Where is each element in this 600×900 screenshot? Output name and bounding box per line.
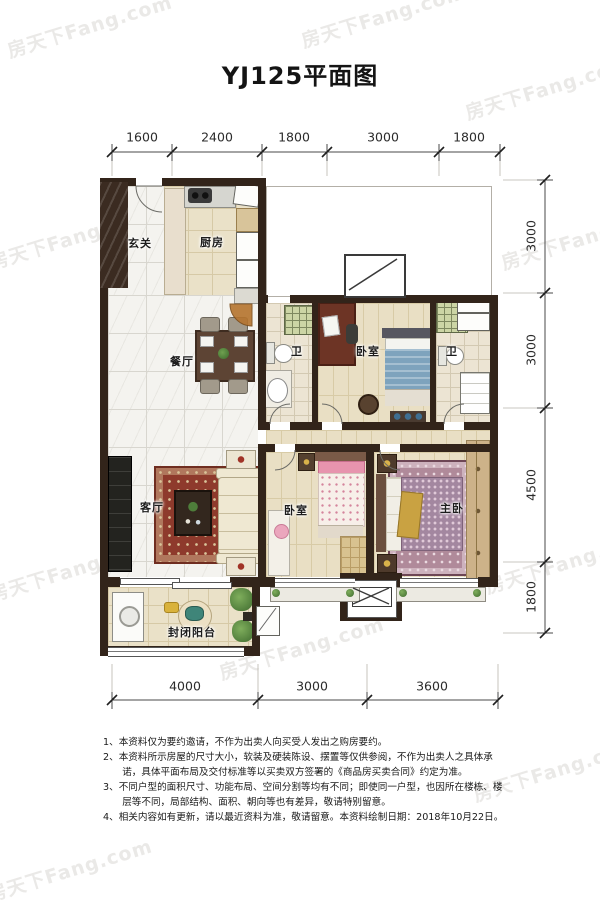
room-label-entry: 玄关	[128, 235, 152, 251]
corner-window	[256, 606, 280, 636]
dim-bottom-2: 3000	[296, 679, 328, 694]
dim-right-3: 4500	[524, 469, 539, 501]
coffee-table	[174, 490, 212, 536]
side-table	[226, 557, 256, 576]
wardrobe	[466, 440, 490, 582]
sill-plant	[473, 589, 481, 597]
wall-segment	[100, 577, 120, 587]
dim-bottom-3: 3600	[416, 679, 448, 694]
disclaimer-notes: 1、本资料仅为要约邀请，不作为出卖人向买受人发出之购房要约。 2、本资料所示房屋…	[103, 736, 505, 826]
place-setting	[200, 336, 214, 347]
desk-paper	[322, 315, 341, 337]
kitchen-cabinet	[236, 208, 260, 232]
dim-top-2: 2400	[201, 130, 233, 145]
note-line: 3、不同户型的面积尺寸、功能布局、空间分割等均有不同；即使同一户型，也因所在楼栋…	[103, 781, 505, 810]
floor-hallway	[266, 430, 490, 444]
sliding-door-panel	[120, 578, 180, 585]
room-label-bath1: 卫	[291, 343, 303, 359]
wall-segment	[400, 444, 490, 452]
balcony-window	[108, 647, 244, 657]
closet	[268, 510, 290, 576]
room-label-bath2: 卫	[446, 343, 458, 359]
place-setting	[234, 362, 248, 373]
room-label-dining: 餐厅	[170, 353, 194, 369]
room-label-master: 主卧	[440, 500, 464, 516]
place-setting	[234, 336, 248, 347]
wall-segment	[430, 303, 436, 422]
water-heater	[460, 372, 490, 414]
bowl	[185, 606, 204, 621]
floorplan-page: 房天下Fang.com 房天下Fang.com 房天下Fang.com 房天下F…	[0, 0, 600, 900]
sliding-door-panel	[172, 582, 232, 589]
tv-cabinet	[108, 456, 132, 572]
entry-closet	[100, 182, 128, 288]
stool	[164, 602, 179, 613]
dim-right-4: 1800	[524, 581, 539, 613]
table-plant	[218, 348, 229, 359]
bed1-duvet	[385, 349, 430, 389]
bed1-bench	[390, 411, 426, 422]
room-label-balcony: 封闭阳台	[168, 624, 216, 640]
watermark: 房天下Fang.com	[4, 0, 176, 63]
wall-segment	[342, 422, 444, 430]
shower-area	[284, 305, 314, 335]
dining-chair	[228, 317, 248, 332]
page-title: YJ125平面图	[0, 56, 600, 91]
dim-right-1: 3000	[524, 220, 539, 252]
nightstand	[298, 453, 315, 471]
watermark: 房天下Fang.com	[298, 0, 470, 53]
room-label-living: 客厅	[140, 499, 164, 515]
note-line: 1、本资料仅为要约邀请，不作为出卖人向买受人发出之购房要约。	[103, 736, 505, 750]
bed2-headboard	[315, 452, 366, 461]
bed1-headboard	[382, 328, 433, 338]
kitchen-appliance	[236, 232, 260, 260]
tatami-cabinet	[340, 536, 368, 578]
nightstand	[377, 554, 397, 573]
wall-segment	[490, 295, 498, 587]
dining-chair	[228, 379, 248, 394]
dim-top-3: 1800	[278, 130, 310, 145]
dim-top-1: 1600	[126, 130, 158, 145]
wall-segment	[258, 452, 266, 577]
master-headboard	[376, 474, 386, 552]
wall-segment	[366, 452, 374, 577]
floorplan: 玄关 厨房 餐厅 卫 卧室 卫 客厅 卧室 主卧 封闭阳台	[100, 178, 498, 660]
wall-segment	[312, 303, 318, 422]
round-stool	[358, 394, 379, 415]
wall-segment	[258, 444, 275, 452]
kitchen-appliance	[236, 260, 260, 288]
sill-plant	[346, 589, 354, 597]
wall-segment	[258, 295, 268, 303]
bath-cabinet	[457, 313, 490, 331]
desk-chair	[346, 324, 358, 344]
note-line: 4、相关内容如有更新，请以最近资料为准，敬请留意。本资料绘制日期：2018年10…	[103, 811, 505, 825]
potted-plant	[230, 588, 253, 611]
washer-door	[119, 606, 140, 627]
room-label-bedroom2: 卧室	[284, 502, 308, 518]
dim-right-2: 3000	[524, 334, 539, 366]
sill-plant	[399, 589, 407, 597]
wall-segment	[295, 444, 380, 452]
dim-top-5: 1800	[453, 130, 485, 145]
watermark: 房天下Fang.com	[482, 524, 600, 600]
place-setting	[200, 362, 214, 373]
wall-segment	[258, 422, 270, 430]
bed2-duvet	[318, 473, 365, 527]
wall-segment	[290, 422, 322, 430]
room-label-kitchen: 厨房	[200, 234, 224, 250]
side-table	[226, 450, 256, 469]
dining-chair	[200, 317, 220, 332]
wall-segment	[464, 422, 490, 430]
watermark: 房天下Fang.com	[498, 200, 600, 276]
sill-plant	[272, 589, 280, 597]
nightstand	[377, 454, 397, 473]
bed1-foot	[385, 389, 430, 406]
room-label-bedroom1: 卧室	[356, 343, 380, 359]
potted-plant	[232, 620, 254, 642]
vanity-chair	[274, 524, 289, 539]
wall-segment	[258, 178, 266, 430]
note-line: 2、本资料所示房屋的尺寸大小，软装及硬装陈设、摆置等仅供参阅，不作为出卖人之具体…	[103, 751, 505, 780]
watermark: 房天下Fang.com	[0, 832, 155, 900]
stove	[188, 188, 212, 203]
dim-bottom-1: 4000	[169, 679, 201, 694]
sink	[267, 378, 288, 403]
wall-segment	[162, 178, 266, 186]
elevator-shaft	[344, 254, 406, 298]
dim-top-4: 3000	[367, 130, 399, 145]
wall-segment	[230, 577, 252, 587]
kitchen-cabinet-strip	[164, 188, 186, 295]
dining-chair	[200, 379, 220, 394]
wall-segment	[478, 577, 498, 587]
